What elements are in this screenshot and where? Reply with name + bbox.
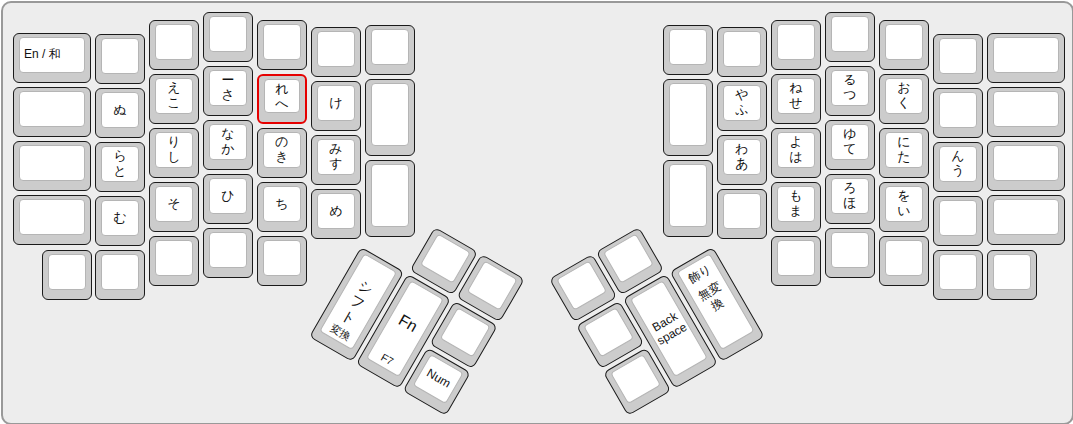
key-legend: さ xyxy=(221,88,234,103)
key-blank[interactable] xyxy=(987,33,1065,83)
key-legend: を xyxy=(897,189,910,204)
keycap-face xyxy=(777,240,815,276)
keycap-face: みす xyxy=(317,139,355,175)
key-blank[interactable] xyxy=(987,141,1065,191)
key-legend: の xyxy=(275,135,288,150)
keycap-face xyxy=(263,24,301,60)
key-legend: へ xyxy=(275,97,288,112)
key-en-wa[interactable]: En / 和 xyxy=(13,33,91,83)
key-legend: も xyxy=(789,189,802,204)
key-legend: す xyxy=(329,157,342,172)
keycap-face xyxy=(155,24,193,60)
key-legend: シフト xyxy=(341,270,380,322)
key-blank[interactable] xyxy=(257,236,307,286)
keycap-face: よは xyxy=(777,132,815,168)
keycap-face xyxy=(669,29,707,65)
key-legend: ゆ xyxy=(843,127,856,142)
keycap-face xyxy=(419,233,470,283)
key-legend: ぬ xyxy=(113,103,126,118)
key-so[interactable]: そ xyxy=(149,182,199,232)
key-blank[interactable] xyxy=(771,20,821,70)
keycap-face: Num xyxy=(412,354,463,404)
key-ra-to[interactable]: らと xyxy=(95,142,145,192)
keycap-face xyxy=(556,260,607,310)
key-blank[interactable] xyxy=(13,195,91,245)
key-blank[interactable] xyxy=(663,79,713,156)
keycap-face xyxy=(466,260,517,310)
key-blank[interactable] xyxy=(365,160,415,237)
keycap-face: ゆて xyxy=(831,124,869,160)
keycap-face: りし xyxy=(155,132,193,168)
key-blank[interactable] xyxy=(365,79,415,156)
key-n-u[interactable]: んう xyxy=(933,142,983,192)
keycap-face xyxy=(993,37,1059,73)
key-blank[interactable] xyxy=(987,87,1065,137)
key-legend: た xyxy=(897,150,910,165)
keyboard-editor-stage: En / 和ぬらとむえこりしそーさなかひれへのきちけみすめやふわあねせよはもまる… xyxy=(0,0,1073,424)
key-blank[interactable] xyxy=(13,87,91,137)
key-blank[interactable] xyxy=(825,12,875,62)
keycap-face: やふ xyxy=(723,85,761,121)
keycap-face: をい xyxy=(885,186,923,222)
key-blank[interactable] xyxy=(149,236,199,286)
keycap-face xyxy=(439,307,490,357)
key-legend: そ xyxy=(167,197,180,212)
keycap-face: ひ xyxy=(209,178,247,214)
key-ri-shi[interactable]: りし xyxy=(149,128,199,178)
key-wo-i[interactable]: をい xyxy=(879,182,929,232)
keycap-face xyxy=(885,24,923,60)
keycap-face xyxy=(155,240,193,276)
keycap-face xyxy=(209,232,247,268)
key-legend: る xyxy=(843,73,856,88)
key-blank[interactable] xyxy=(42,250,92,300)
keycap-face: んう xyxy=(939,146,977,182)
key-legend: き xyxy=(275,150,288,165)
key-chi[interactable]: ち xyxy=(257,182,307,232)
keycap-face xyxy=(48,254,86,290)
key-legend: め xyxy=(329,204,342,219)
key-legend: ろ xyxy=(843,181,856,196)
key-blank[interactable] xyxy=(257,20,307,70)
keycap-face xyxy=(993,254,1031,290)
key-legend: と xyxy=(113,164,126,179)
keycap-face: ろほ xyxy=(831,178,869,214)
keycap-face xyxy=(371,29,409,65)
keycap-face xyxy=(209,16,247,52)
key-legend: お xyxy=(897,81,910,96)
key-legend: ほ xyxy=(843,196,856,211)
key-me[interactable]: め xyxy=(311,189,361,239)
key-legend: し xyxy=(167,150,180,165)
keycap-face xyxy=(583,307,634,357)
keycap-face: En / 和 xyxy=(19,37,85,73)
keyboard-canvas: En / 和ぬらとむえこりしそーさなかひれへのきちけみすめやふわあねせよはもまる… xyxy=(1,1,1073,424)
keycap-face: わあ xyxy=(723,139,761,175)
keycap-face: む xyxy=(101,200,139,236)
keycap-face: ち xyxy=(263,186,301,222)
key-legend: ら xyxy=(113,149,126,164)
key-e-ko[interactable]: えこ xyxy=(149,74,199,124)
key-blank[interactable] xyxy=(663,160,713,237)
key-legend: か xyxy=(221,142,234,157)
key-blank[interactable] xyxy=(771,236,821,286)
key-yo-ha[interactable]: よは xyxy=(771,128,821,178)
key-legend: い xyxy=(897,204,910,219)
key-na-ka[interactable]: なか xyxy=(203,120,253,170)
keycap-face xyxy=(885,240,923,276)
key-blank[interactable] xyxy=(663,25,713,75)
keycap-face xyxy=(317,31,355,67)
key-legend: あ xyxy=(735,157,748,172)
keycap-face: るつ xyxy=(831,70,869,106)
keycap-face xyxy=(777,24,815,60)
keycap-face: もま xyxy=(777,186,815,222)
keycap-face: ねせ xyxy=(777,78,815,114)
key-ya-fu[interactable]: やふ xyxy=(717,81,767,131)
key-legend: ー xyxy=(222,73,235,88)
keycap-face xyxy=(939,38,977,74)
keycap-face xyxy=(993,91,1059,127)
key-mi-su[interactable]: みす xyxy=(311,135,361,185)
key-legend: け xyxy=(329,96,342,111)
key-legend: こ xyxy=(167,96,180,111)
key-ne-se[interactable]: ねせ xyxy=(771,74,821,124)
key-blank[interactable] xyxy=(149,20,199,70)
key-blank[interactable] xyxy=(203,12,253,62)
keycap-face xyxy=(371,164,409,227)
keycap-face: おく xyxy=(885,78,923,114)
keycap-face xyxy=(19,145,85,181)
keycap-face: め xyxy=(317,193,355,229)
key-legend: え xyxy=(167,81,180,96)
key-wa-a[interactable]: わあ xyxy=(717,135,767,185)
key-ke[interactable]: け xyxy=(311,81,361,131)
key-blank[interactable] xyxy=(987,250,1037,300)
keycap-face xyxy=(831,232,869,268)
key-o-ku[interactable]: おく xyxy=(879,74,929,124)
keycap-face: のき xyxy=(263,132,301,168)
keycap-face xyxy=(669,83,707,146)
key-ni-ta[interactable]: にた xyxy=(879,128,929,178)
key-legend: つ xyxy=(843,88,856,103)
key-legend: り xyxy=(167,135,180,150)
key-blank[interactable] xyxy=(13,141,91,191)
keycap-face: にた xyxy=(885,132,923,168)
keycap-face xyxy=(993,145,1059,181)
keycap-face: ぬ xyxy=(101,92,139,128)
key-legend: ち xyxy=(275,197,288,212)
key-legend: 無変換 xyxy=(695,278,733,318)
keycap-face xyxy=(610,354,661,404)
keycap-face xyxy=(603,233,654,283)
key-blank[interactable] xyxy=(717,189,767,239)
key-blank[interactable] xyxy=(95,250,145,300)
keycap-face xyxy=(19,199,85,235)
key-blank[interactable] xyxy=(825,228,875,278)
key-legend: Back space xyxy=(646,307,691,349)
key-blank[interactable] xyxy=(879,236,929,286)
key-legend: て xyxy=(843,142,856,157)
keycap-face xyxy=(371,83,409,146)
key-legend: よ xyxy=(789,135,802,150)
keycap-face: らと xyxy=(101,146,139,182)
keycap-face: そ xyxy=(155,186,193,222)
key-legend: な xyxy=(221,127,234,142)
keycap-face xyxy=(263,240,301,276)
key-legend: ま xyxy=(789,204,802,219)
key-legend: ひ xyxy=(221,189,234,204)
keycap-face xyxy=(669,164,707,227)
key-legend: Num xyxy=(423,367,452,392)
key-legend: せ xyxy=(789,96,802,111)
keycap-face xyxy=(939,200,977,236)
key-re-he[interactable]: れへ xyxy=(257,74,307,124)
key-blank[interactable] xyxy=(365,25,415,75)
keycap-face xyxy=(101,38,139,74)
key-legend: み xyxy=(329,142,342,157)
keycap-face xyxy=(723,31,761,67)
key-legend: は xyxy=(789,150,802,165)
key-legend: ふ xyxy=(735,103,748,118)
key-blank[interactable] xyxy=(933,196,983,246)
keycap-face xyxy=(19,91,85,127)
key-legend: ね xyxy=(789,81,802,96)
keycap-face xyxy=(831,16,869,52)
key-blank[interactable] xyxy=(203,228,253,278)
key-onbiki-sa[interactable]: ーさ xyxy=(203,66,253,116)
key-legend: ん xyxy=(951,149,964,164)
key-legend: く xyxy=(897,96,910,111)
key-blank[interactable] xyxy=(987,195,1065,245)
keycap-face: け xyxy=(317,85,355,121)
key-mo-ma[interactable]: もま xyxy=(771,182,821,232)
key-mu[interactable]: む xyxy=(95,196,145,246)
key-no-ki[interactable]: のき xyxy=(257,128,307,178)
key-ro-ho[interactable]: ろほ xyxy=(825,174,875,224)
keycap-face: れへ xyxy=(264,79,300,113)
keycap-face xyxy=(993,199,1059,235)
key-legend: う xyxy=(951,164,964,179)
keycap-face xyxy=(101,254,139,290)
keycap-face: ーさ xyxy=(209,70,247,106)
keycap-face: えこ xyxy=(155,78,193,114)
keycap-face xyxy=(939,92,977,128)
key-legend: Fn xyxy=(395,311,420,336)
key-blank[interactable] xyxy=(933,34,983,84)
key-blank[interactable] xyxy=(933,250,983,300)
key-legend: や xyxy=(735,88,748,103)
key-blank[interactable] xyxy=(933,88,983,138)
key-legend: わ xyxy=(735,142,748,157)
key-hi[interactable]: ひ xyxy=(203,174,253,224)
key-legend: む xyxy=(113,211,126,226)
key-ru-tsu[interactable]: るつ xyxy=(825,66,875,116)
key-legend: En / 和 xyxy=(24,48,61,62)
key-blank[interactable] xyxy=(95,34,145,84)
keycap-face: なか xyxy=(209,124,247,160)
key-legend: れ xyxy=(275,82,288,97)
key-legend: に xyxy=(897,135,910,150)
key-blank[interactable] xyxy=(717,27,767,77)
key-nu[interactable]: ぬ xyxy=(95,88,145,138)
keycap-face xyxy=(939,254,977,290)
keycap-face xyxy=(723,193,761,229)
key-yu-te[interactable]: ゆて xyxy=(825,120,875,170)
key-blank[interactable] xyxy=(311,27,361,77)
key-blank[interactable] xyxy=(879,20,929,70)
